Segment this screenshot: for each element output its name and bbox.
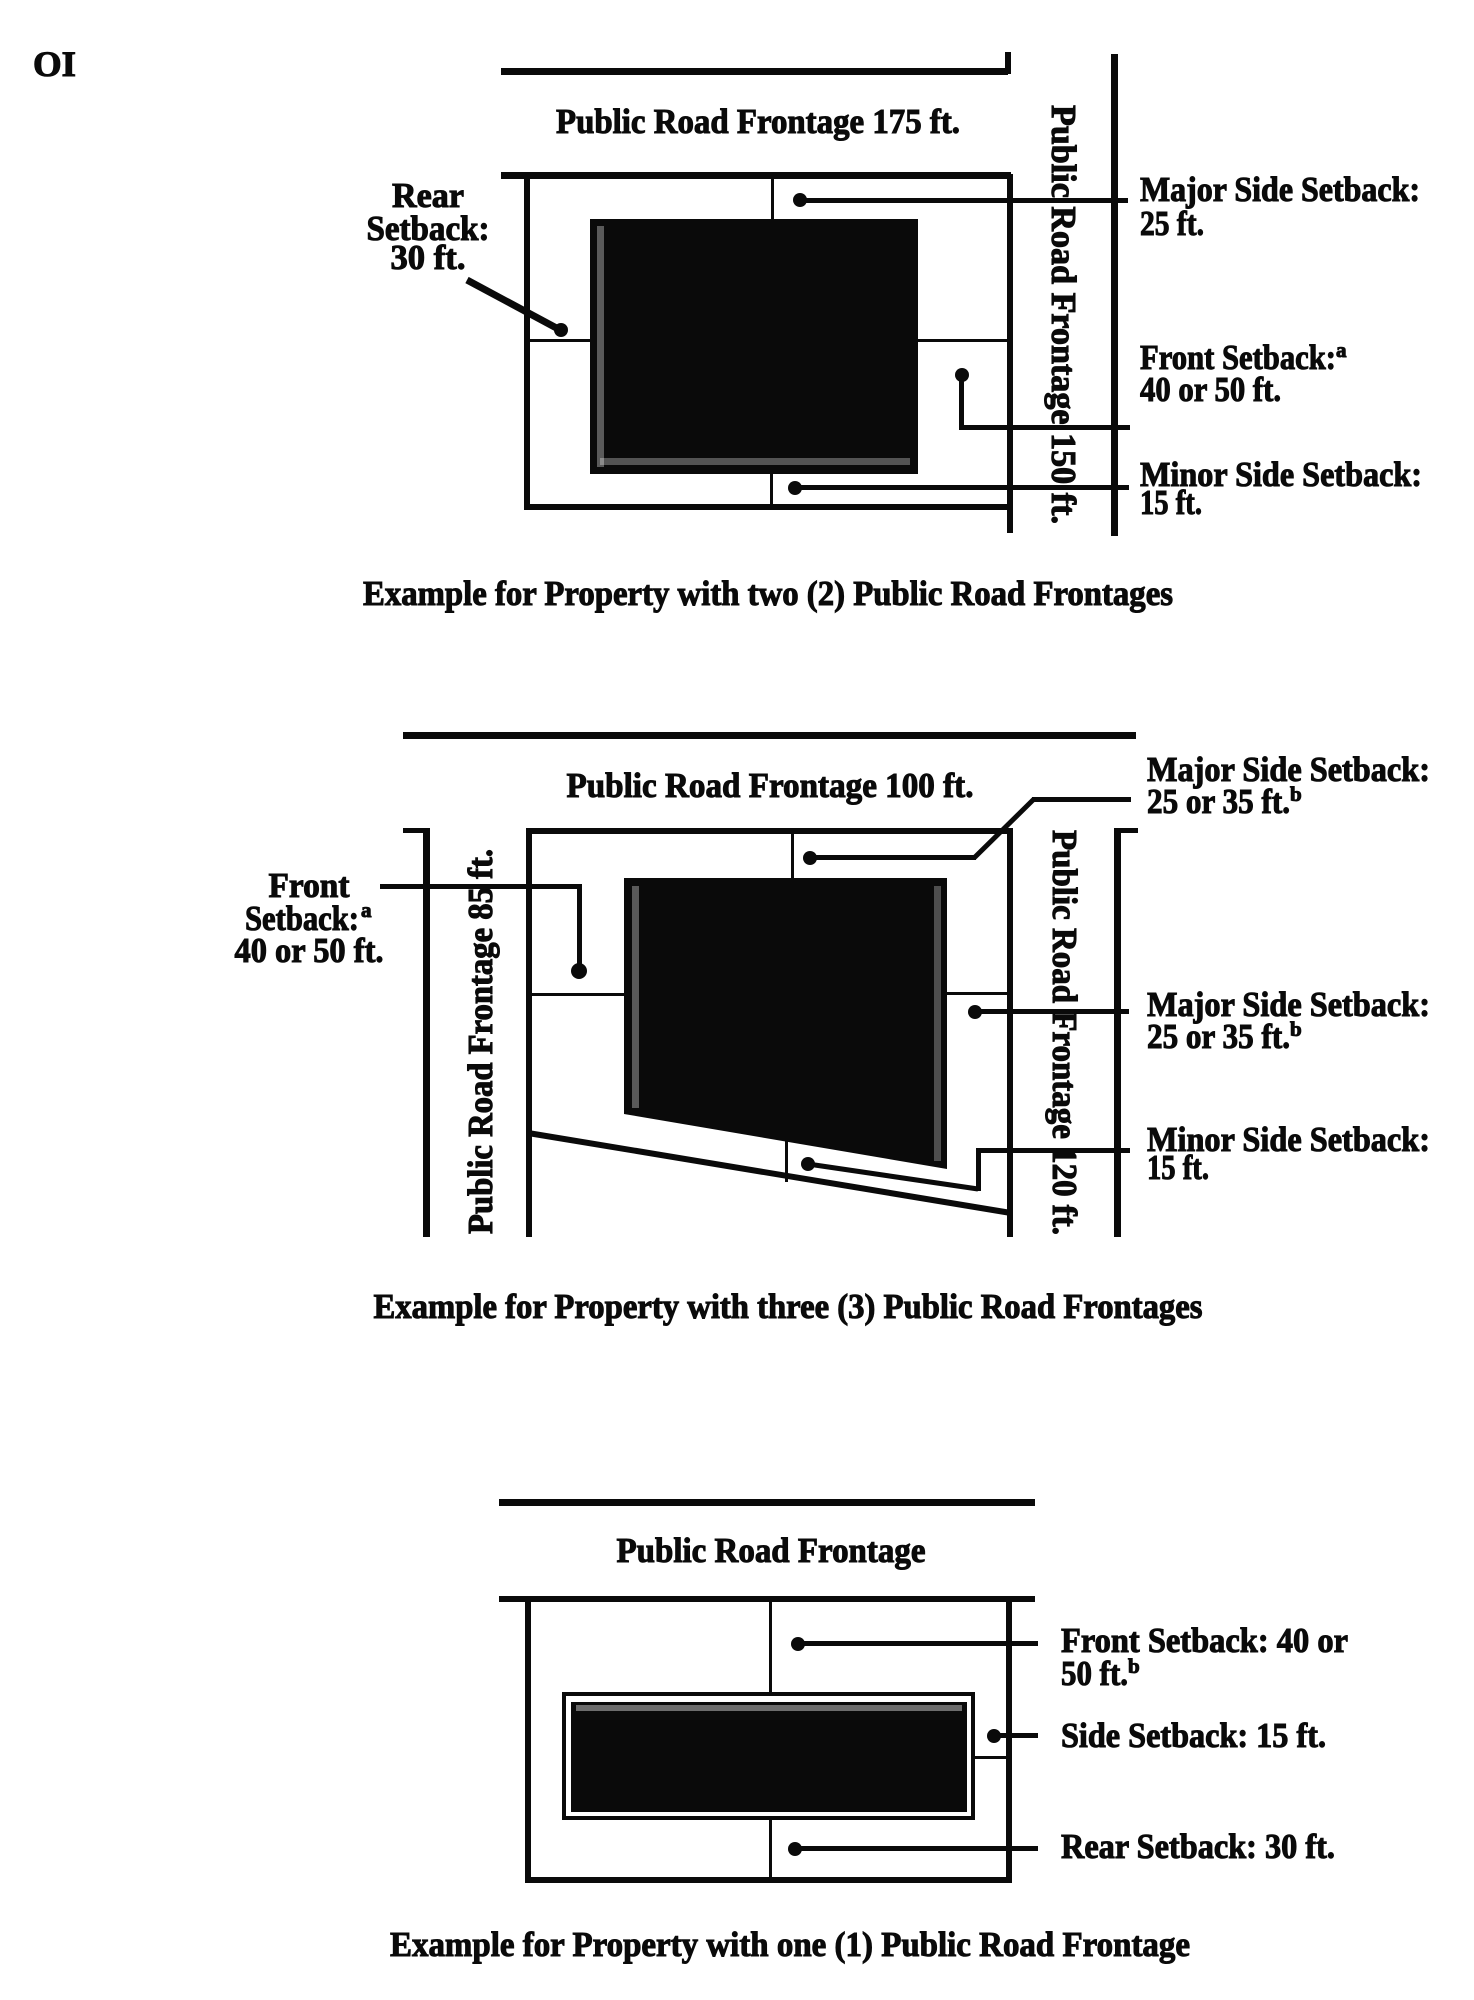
svg-text:25 ft.: 25 ft. [1140,204,1204,243]
svg-text:15 ft.: 15 ft. [1147,1148,1209,1187]
svg-text:15 ft.: 15 ft. [1140,483,1202,522]
svg-text:25 or 35 ft.b: 25 or 35 ft.b [1147,1017,1302,1056]
svg-text:Example for Property with two: Example for Property with two (2) Public… [363,574,1173,613]
svg-text:Example for Property with thre: Example for Property with three (3) Publ… [374,1287,1203,1326]
svg-text:Public Road Frontage: Public Road Frontage [617,1531,926,1570]
svg-text:Rear Setback: 30 ft.: Rear Setback: 30 ft. [1061,1827,1335,1866]
svg-text:Public Road Frontage 175 ft.: Public Road Frontage 175 ft. [556,102,960,141]
svg-text:Side Setback: 15 ft.: Side Setback: 15 ft. [1061,1716,1326,1755]
svg-text:30 ft.: 30 ft. [391,238,466,277]
svg-text:40 or 50 ft.: 40 or 50 ft. [235,931,384,970]
svg-text:Public Road Frontage 150 ft.: Public Road Frontage 150 ft. [1044,105,1083,524]
svg-text:a: a [361,898,372,922]
svg-text:Public Road Frontage 120 ft.: Public Road Frontage 120 ft. [1045,830,1084,1235]
svg-text:Public Road Frontage 85 ft.: Public Road Frontage 85 ft. [461,849,500,1234]
svg-text:Example for Property with one: Example for Property with one (1) Public… [390,1925,1190,1964]
svg-text:Public Road Frontage 100 ft.: Public Road Frontage 100 ft. [567,766,974,805]
svg-text:50 ft.b: 50 ft.b [1061,1654,1140,1693]
svg-text:OI: OI [33,44,76,84]
svg-text:25 or 35 ft.b: 25 or 35 ft.b [1147,782,1302,821]
svg-text:40 or 50 ft.: 40 or 50 ft. [1140,370,1281,409]
